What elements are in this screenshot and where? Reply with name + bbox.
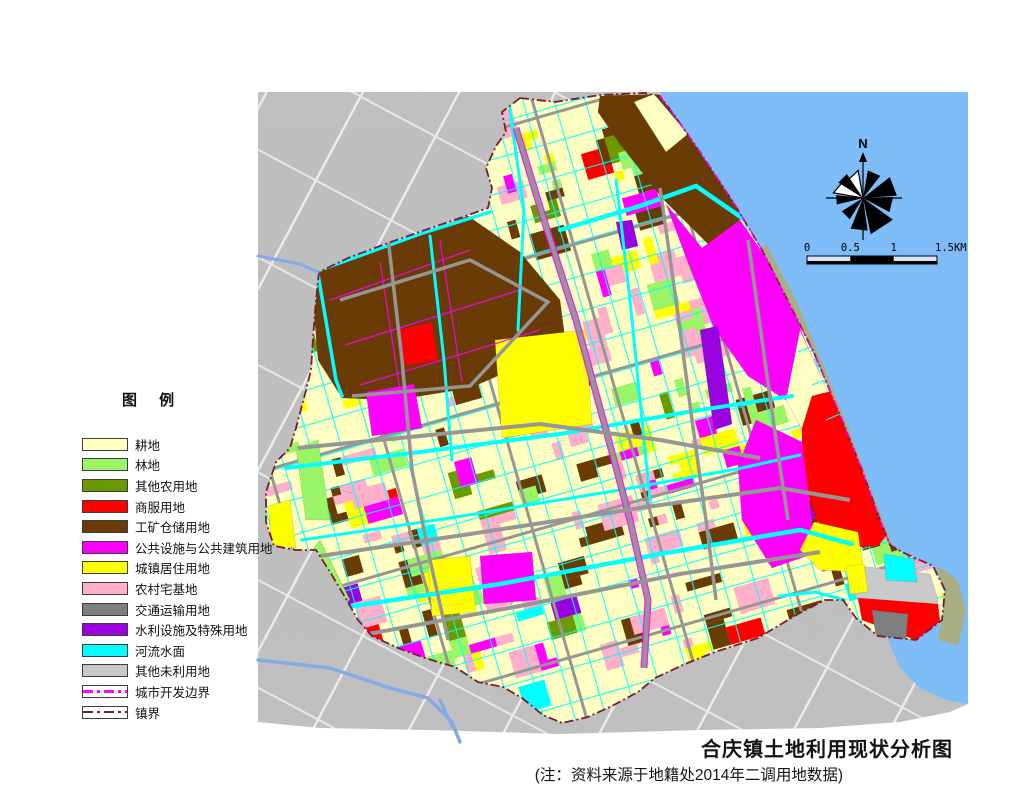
legend-item: 公共设施与公共建筑用地 [82,537,297,558]
rural_homestead-swatch [82,582,128,595]
legend-items: 耕地林地其他农用地商服用地工矿仓储用地公共设施与公共建筑用地城镇居住用地农村宅基… [82,434,297,722]
legend-item-label: 镇界 [135,703,160,722]
legend-item: 工矿仓储用地 [82,516,297,537]
compass-north-label: N [858,136,867,151]
map-title: 合庆镇土地利用现状分析图 [701,733,953,762]
legend-item: 镇界 [82,702,297,723]
legend-item-label: 林地 [135,455,160,474]
legend-item: 河流水面 [82,640,297,661]
scale-label: 0.5 [841,242,860,254]
legend-item-label: 其他农用地 [135,476,198,495]
land-parcel [421,769,435,789]
land-parcel [751,25,776,56]
scale-label: 0 [804,242,810,254]
boundary_urban-line [83,690,127,693]
land-parcel [753,62,773,76]
scale-bar-stripe [807,261,850,264]
other_agri-swatch [82,479,128,492]
legend-item: 商服用地 [82,496,297,517]
boundary_urban-swatch [82,685,128,698]
land-parcel [774,38,794,52]
land-parcel [737,41,753,69]
zone-urban_residential [846,564,868,594]
legend-item-label: 其他未利用地 [135,661,210,680]
land-parcel [512,759,537,790]
transport-swatch [82,603,128,616]
zone-commercial [398,322,438,366]
legend-item-label: 农村宅基地 [135,579,198,598]
land-parcel [410,755,447,774]
land-parcel [365,738,381,766]
legend-item: 交通运输用地 [82,599,297,620]
land-parcel [358,775,380,797]
boundary_town-swatch [82,706,128,719]
legend-item-label: 商服用地 [135,497,185,516]
legend-item: 林地 [82,455,297,476]
land-parcel [218,253,240,275]
river-swatch [82,644,128,657]
land-parcel [787,55,798,66]
legend-item: 农村宅基地 [82,578,297,599]
scale-bar-stripe [894,261,937,264]
legend-item: 其他农用地 [82,475,297,496]
land-parcel [593,56,630,75]
legend-item-label: 公共设施与公共建筑用地 [135,538,273,557]
legend-item: 其他未利用地 [82,661,297,682]
boundary_town-line [83,711,127,714]
legend-panel: 图 例 耕地林地其他农用地商服用地工矿仓储用地公共设施与公共建筑用地城镇居住用地… [82,389,297,722]
public-swatch [82,541,128,554]
land-parcel [180,187,211,212]
land-parcel [442,736,482,763]
legend-item-label: 城市开发边界 [135,682,210,701]
land-parcel [230,234,241,245]
land-parcel [221,234,246,265]
scale-bar-segment [850,256,893,264]
legend-item-label: 交通运输用地 [135,600,210,619]
land-parcel [802,34,842,61]
legend-item: 水利设施及特殊用地 [82,619,297,640]
land-parcel [718,70,746,86]
legend-item: 城市开发边界 [82,681,297,702]
industrial-swatch [82,520,128,533]
cultivated-swatch [82,438,128,451]
commercial-swatch [82,500,128,513]
legend-item-label: 城镇居住用地 [135,558,210,577]
legend-item-label: 耕地 [135,435,160,454]
zone-urban_residential [495,330,592,438]
scale-label: 1.5KM [935,242,967,254]
land-parcel [188,210,230,246]
land-parcel [211,199,233,221]
water_facility-swatch [82,623,128,636]
urban_residential-swatch [82,561,128,574]
scale-label: 1 [891,242,897,254]
legend-item: 城镇居住用地 [82,558,297,579]
forest-swatch [82,458,128,471]
land-parcel [615,76,626,87]
legend-title: 图 例 [122,389,297,410]
map-note: (注：资料来源于地籍处2014年二调用地数据) [535,763,843,785]
land-parcel [570,733,590,747]
land-parcel [187,180,198,191]
land-parcel [193,227,235,263]
unused-swatch [82,664,128,677]
land-parcel [384,767,406,789]
legend-item-label: 工矿仓储用地 [135,517,210,536]
page: N00.511.5KM 图 例 耕地林地其他农用地商服用地工矿仓储用地公共设施与… [0,0,1020,801]
legend-item: 耕地 [82,434,297,455]
legend-item-label: 河流水面 [135,641,185,660]
legend-item-label: 水利设施及特殊用地 [135,620,248,639]
land-parcel [805,50,819,70]
